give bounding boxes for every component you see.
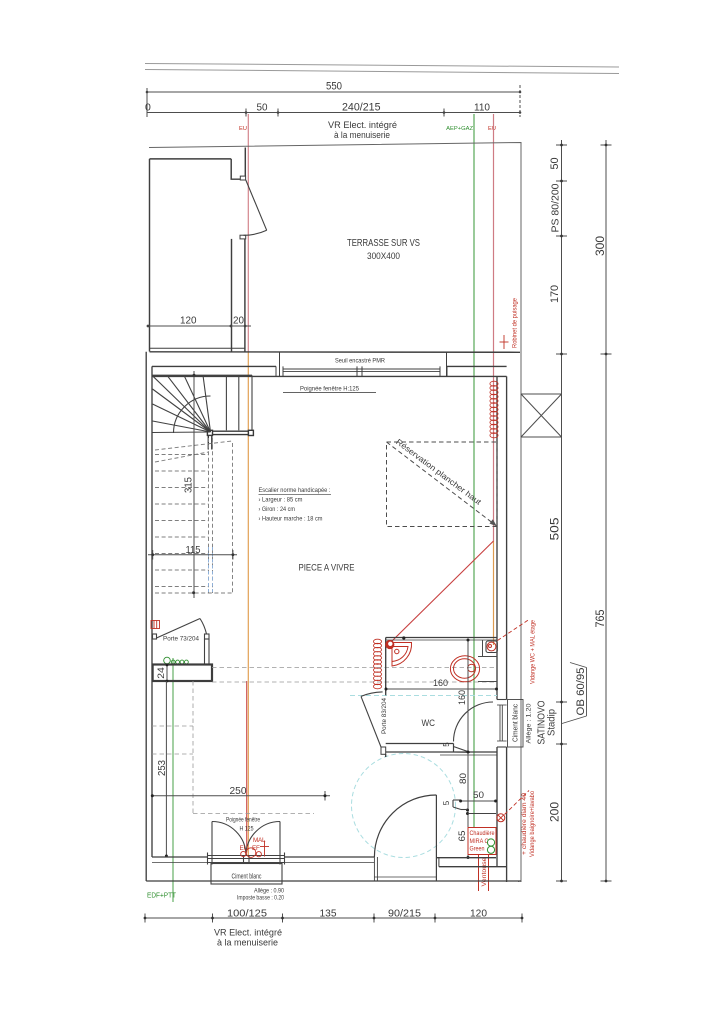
svg-text:50: 50 — [549, 158, 561, 170]
svg-text:90/215: 90/215 — [388, 908, 421, 920]
svg-text:20: 20 — [233, 315, 244, 327]
svg-text:300X400: 300X400 — [367, 250, 400, 261]
svg-text:200: 200 — [548, 802, 562, 822]
svg-text:135: 135 — [320, 908, 337, 920]
svg-text:Poignée fenêtre: Poignée fenêtre — [226, 817, 260, 824]
svg-text:110: 110 — [474, 102, 490, 114]
svg-text:65: 65 — [457, 831, 467, 842]
svg-text:300: 300 — [595, 236, 607, 256]
svg-text:120: 120 — [470, 908, 487, 920]
svg-text:0: 0 — [145, 102, 151, 114]
svg-text:MIRA C: MIRA C — [470, 839, 490, 845]
svg-text:5: 5 — [442, 742, 451, 747]
svg-text:TERRASSE SUR VS: TERRASSE SUR VS — [347, 238, 420, 249]
svg-text:5: 5 — [442, 800, 451, 805]
svg-text:PIECE A VIVRE: PIECE A VIVRE — [299, 563, 355, 574]
svg-text:115: 115 — [186, 544, 201, 556]
svg-text:Green: Green — [470, 847, 485, 853]
svg-text:Seuil encastré PMR: Seuil encastré PMR — [335, 358, 385, 365]
svg-text:Vidange WC + MAL étage: Vidange WC + MAL étage — [530, 620, 537, 684]
svg-text:Imposte basse : 0.20: Imposte basse : 0.20 — [237, 896, 285, 902]
svg-text:Allège : 0.90: Allège : 0.90 — [254, 889, 285, 895]
svg-text:253: 253 — [156, 760, 168, 776]
svg-text:Stadip: Stadip — [547, 709, 558, 736]
svg-text:à la menuiserie: à la menuiserie — [334, 130, 390, 140]
svg-text:WC: WC — [422, 718, 436, 729]
svg-text:Porte 83/204: Porte 83/204 — [381, 698, 388, 734]
svg-text:EU: EU — [239, 126, 247, 132]
svg-text:H 125: H 125 — [240, 826, 254, 833]
svg-text:Ciment blanc: Ciment blanc — [232, 874, 262, 881]
svg-text:PS 80/200: PS 80/200 — [551, 183, 562, 232]
svg-text:Porte 73/204: Porte 73/204 — [163, 636, 199, 643]
svg-text:50: 50 — [473, 790, 484, 800]
svg-text:170: 170 — [549, 285, 561, 303]
svg-text:160: 160 — [457, 690, 467, 705]
svg-text:24: 24 — [156, 667, 167, 679]
svg-text:› Hauteur marche : 18 cm: › Hauteur marche : 18 cm — [259, 517, 323, 523]
svg-text:50: 50 — [257, 102, 268, 114]
svg-text:EU: EU — [488, 126, 496, 132]
svg-text:240/215: 240/215 — [342, 102, 381, 114]
svg-text:250: 250 — [230, 785, 247, 797]
svg-text:Chaudière: Chaudière — [470, 831, 496, 837]
svg-text:Ciment blanc: Ciment blanc — [513, 704, 520, 742]
svg-text:765: 765 — [593, 609, 607, 627]
svg-text:Escalier norme handicapée :: Escalier norme handicapée : — [259, 487, 331, 494]
svg-text:Allège : 1.20: Allège : 1.20 — [526, 703, 533, 743]
svg-text:120: 120 — [180, 315, 197, 327]
svg-text:à la menuiserie: à la menuiserie — [217, 938, 278, 948]
svg-text:315: 315 — [183, 477, 195, 493]
svg-text:Vidange baignoire+lavabo: Vidange baignoire+lavabo — [530, 790, 536, 857]
svg-text:100/125: 100/125 — [227, 908, 267, 920]
svg-text:550: 550 — [326, 81, 342, 93]
svg-text:Poignée fenêtre H:125: Poignée fenêtre H:125 — [300, 386, 359, 393]
svg-text:80: 80 — [458, 773, 468, 784]
svg-text:OB 60/95: OB 60/95 — [575, 668, 587, 716]
svg-text:+ chaudière diam 40: + chaudière diam 40 — [522, 792, 528, 855]
svg-text:505: 505 — [548, 517, 562, 540]
svg-text:160: 160 — [433, 678, 448, 688]
svg-text:› Largeur : 85 cm: › Largeur : 85 cm — [259, 498, 303, 504]
svg-text:Ventouse: Ventouse — [481, 857, 488, 886]
svg-text:EDF+PTT: EDF+PTT — [147, 891, 176, 900]
svg-text:VR Elect. intégré: VR Elect. intégré — [214, 928, 282, 938]
svg-text:EU: EU — [240, 845, 249, 852]
svg-text:AEP+GAZ: AEP+GAZ — [446, 126, 473, 132]
svg-text:› Giron : 24 cm: › Giron : 24 cm — [259, 507, 296, 513]
svg-text:Robinet de puisage: Robinet de puisage — [512, 297, 519, 348]
svg-text:VR Elect. intégré: VR Elect. intégré — [328, 120, 397, 130]
